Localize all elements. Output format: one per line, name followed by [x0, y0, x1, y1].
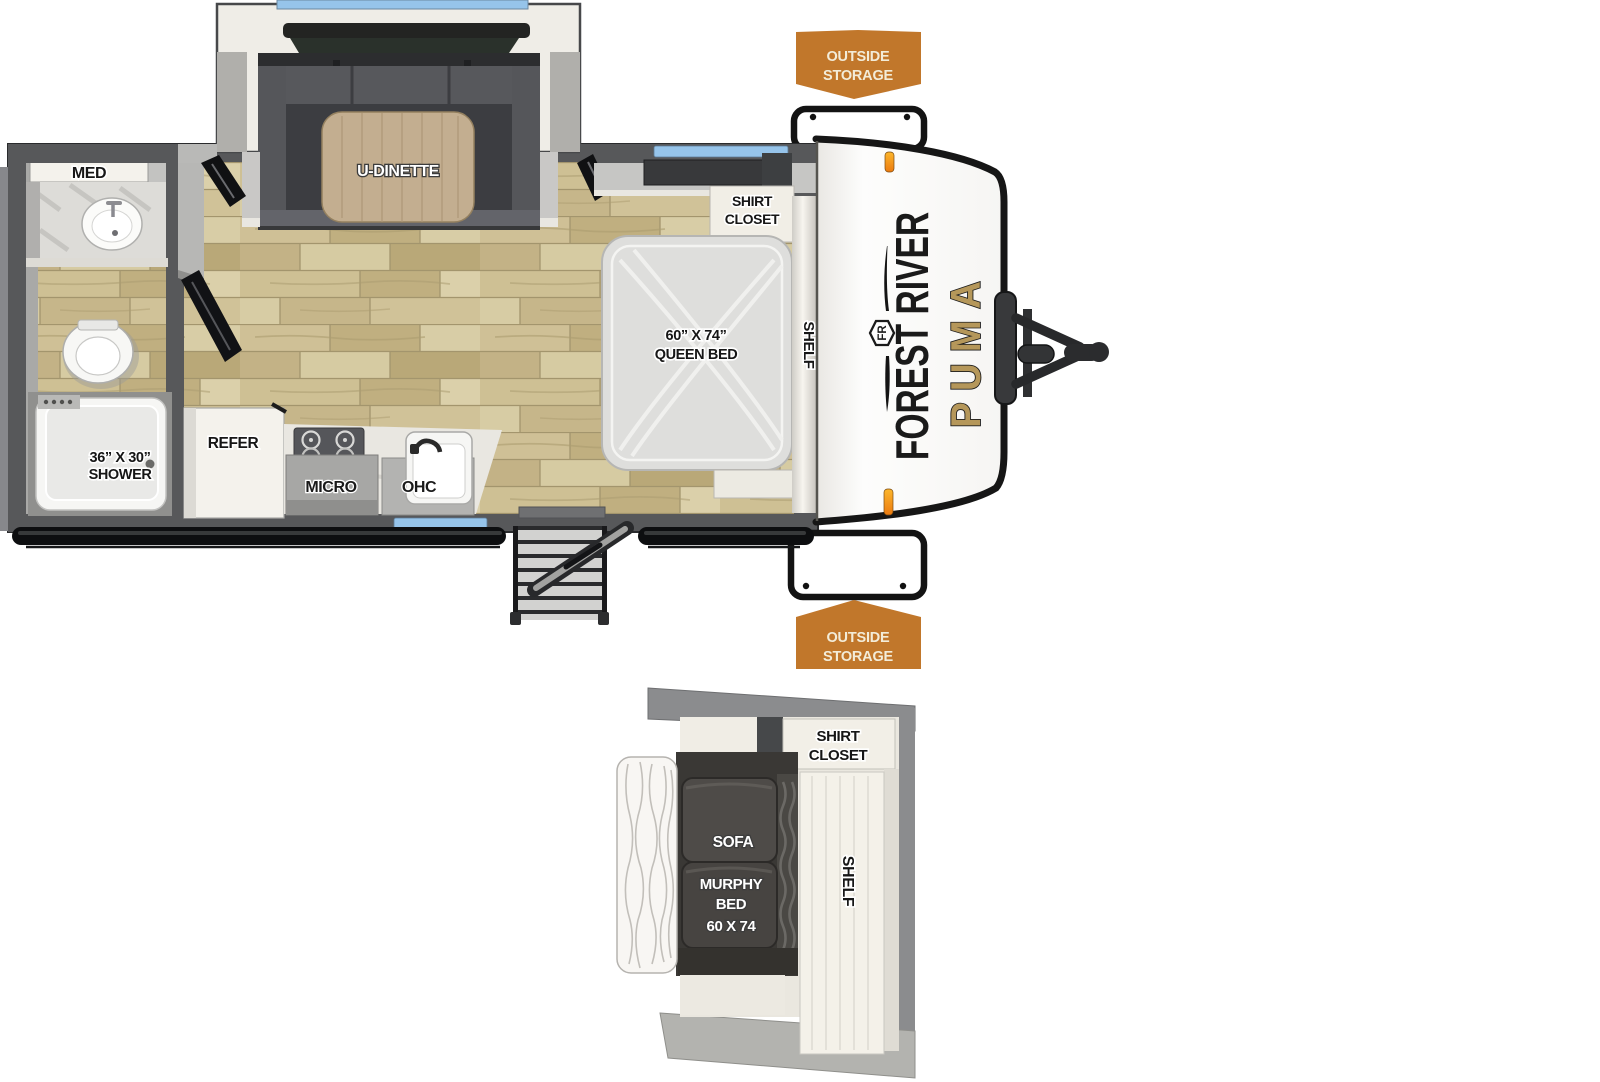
- svg-text:SHOWER: SHOWER: [89, 467, 153, 483]
- svg-text:STORAGE: STORAGE: [823, 649, 894, 665]
- svg-text:U-DINETTE: U-DINETTE: [357, 163, 439, 180]
- svg-text:36” X 30”: 36” X 30”: [90, 450, 151, 466]
- svg-text:OUTSIDE: OUTSIDE: [826, 49, 890, 65]
- svg-text:OUTSIDE: OUTSIDE: [826, 630, 890, 646]
- svg-text:60” X 74”: 60” X 74”: [666, 328, 727, 344]
- svg-text:60 X 74: 60 X 74: [707, 918, 757, 935]
- svg-text:BED: BED: [716, 896, 747, 913]
- svg-text:SHELF: SHELF: [839, 856, 856, 907]
- svg-text:REFER: REFER: [208, 435, 259, 452]
- svg-text:CLOSET: CLOSET: [725, 211, 780, 227]
- svg-text:STORAGE: STORAGE: [823, 68, 894, 84]
- svg-text:SHIRT: SHIRT: [732, 193, 773, 209]
- svg-text:MURPHY: MURPHY: [700, 876, 763, 893]
- svg-text:MICRO: MICRO: [305, 479, 356, 496]
- svg-text:OHC: OHC: [402, 479, 437, 496]
- svg-text:SHELF: SHELF: [800, 321, 817, 368]
- svg-text:QUEEN BED: QUEEN BED: [655, 347, 738, 363]
- svg-text:SHIRT: SHIRT: [816, 728, 859, 745]
- svg-text:CLOSET: CLOSET: [809, 747, 868, 764]
- svg-text:SOFA: SOFA: [713, 834, 754, 851]
- svg-text:FR: FR: [877, 325, 889, 341]
- svg-text:MED: MED: [72, 165, 106, 182]
- svg-text:PUMA: PUMA: [941, 270, 989, 428]
